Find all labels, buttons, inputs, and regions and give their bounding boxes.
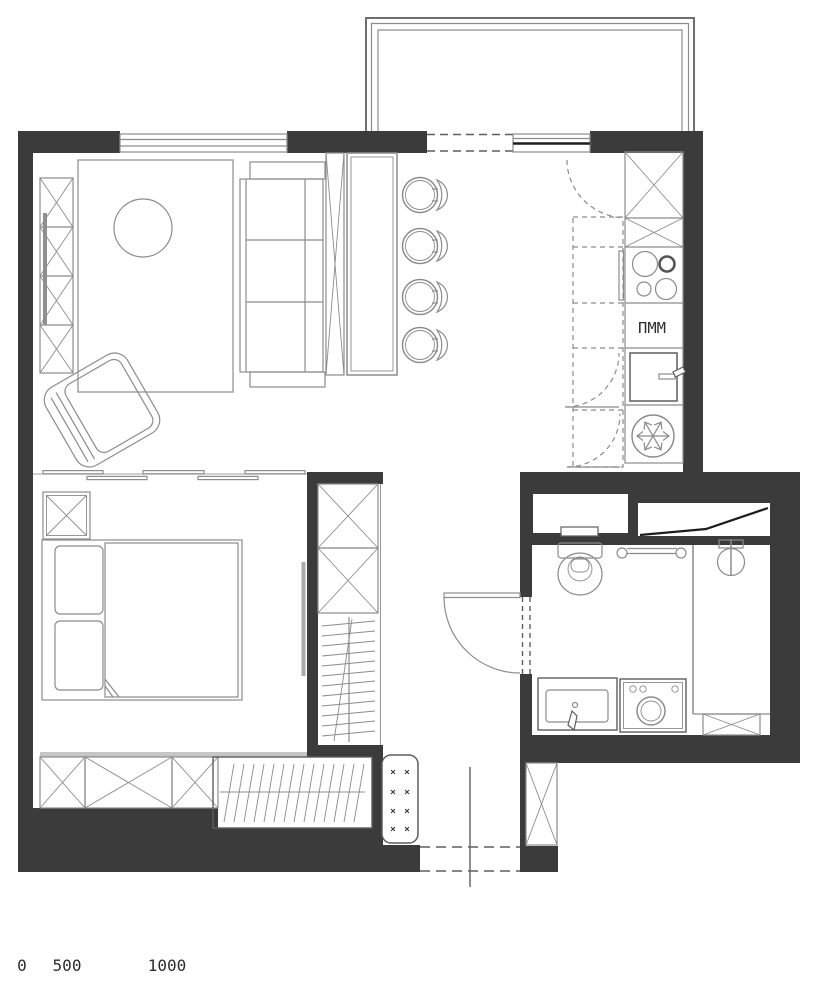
- hall-cabinet: [526, 763, 557, 845]
- scale-bar: 0 500 1000: [17, 956, 186, 975]
- balcony-door: [513, 134, 590, 152]
- wardrobe-bottom: [40, 757, 218, 808]
- sofa: [240, 162, 325, 387]
- round-table: [114, 199, 172, 257]
- scale-tick-0: 0: [17, 956, 27, 975]
- bathroom-door-opening: [519, 597, 533, 674]
- stool-icon: [403, 280, 448, 315]
- sliding-partition: [33, 471, 307, 480]
- upper-cabinets-dashed: [573, 217, 623, 467]
- kitchen: ПММ: [565, 152, 686, 467]
- freezer-snowflake-icon: [632, 415, 674, 457]
- armchair: [39, 348, 165, 473]
- kitchen-counter: [625, 152, 683, 463]
- wall-bottom-left: [18, 808, 218, 872]
- bathroom-interior: [532, 545, 770, 735]
- wall-hall-cabinet-side: [520, 763, 526, 846]
- bathroom-door-swing: [444, 593, 530, 674]
- stool-icon: [403, 178, 448, 213]
- wall-entry-right: [520, 846, 558, 872]
- radiator-icon: [382, 755, 418, 843]
- wall-top-left: [18, 131, 120, 153]
- floor-plan-drawing: ПММ: [0, 0, 820, 990]
- wall-under-bench: [213, 828, 372, 872]
- wall-kitchen-right: [683, 131, 703, 472]
- scale-tick-1000: 1000: [148, 956, 187, 975]
- closet-wall-bottom: [307, 745, 383, 757]
- rug: [78, 160, 233, 392]
- wall-radiator-pocket: [383, 845, 420, 872]
- entry-door: [420, 767, 520, 887]
- wardrobe-track: [40, 752, 307, 757]
- opening-dashed-kitchen: [427, 135, 513, 152]
- closet-wall-top: [307, 472, 383, 484]
- wardrobe-living: [40, 178, 73, 373]
- dishwasher-label: ПММ: [638, 319, 666, 337]
- wall-top-mid: [287, 131, 427, 153]
- bar-stools: [403, 178, 448, 363]
- living-room: [39, 153, 448, 472]
- scale-tick-500: 500: [53, 956, 82, 975]
- bathroom-niche-right: [638, 503, 770, 536]
- shoe-bench: [213, 757, 372, 828]
- oven-icon: [630, 353, 686, 401]
- double-bed: [42, 540, 242, 700]
- window-living: [120, 134, 287, 152]
- bedroom: [40, 484, 381, 808]
- stove-burners-icon: [633, 252, 677, 300]
- mirror: [302, 562, 306, 676]
- bar-divider-panel: [326, 153, 344, 375]
- stool-icon: [403, 328, 448, 363]
- wall-left: [18, 131, 33, 872]
- tall-cabinet-x: [625, 152, 683, 247]
- closet-wall-left: [307, 472, 318, 757]
- floor-plan-page: ПММ: [0, 0, 820, 990]
- nightstand: [43, 492, 90, 539]
- bar-counter: [347, 153, 397, 375]
- cabinet-door-swings: [565, 160, 627, 467]
- toilet-flush-plate: [561, 527, 598, 536]
- stool-icon: [403, 229, 448, 264]
- closet-interior: [318, 484, 381, 745]
